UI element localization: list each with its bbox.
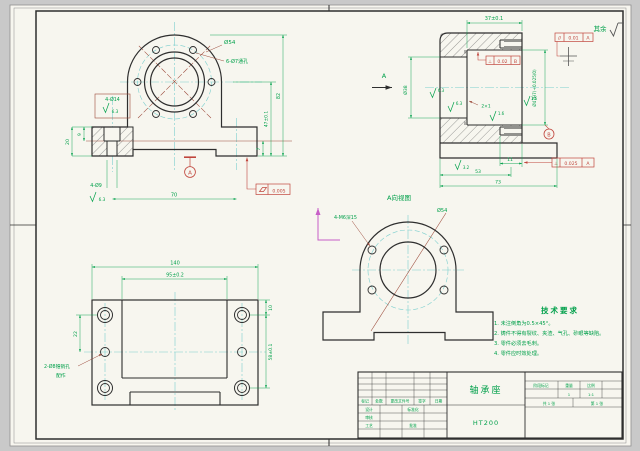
side-ra-bore1: 6.3: [438, 88, 445, 93]
side-view-arrow-label: A: [382, 72, 387, 80]
front-depth20: 20: [65, 139, 71, 145]
parallel-value: 0.01: [568, 36, 578, 42]
drawing-sheet: 其余: [0, 0, 640, 451]
front-bolt-holes-label: 6-Ø7通孔: [226, 58, 248, 65]
perp2-value: 0.025: [564, 161, 577, 167]
side-len11: 11: [507, 157, 513, 163]
tb-row-check: 审核: [365, 415, 373, 420]
bottom-pin-note-2: 配作: [56, 372, 66, 379]
tech-req-title: 技术要求: [541, 305, 579, 315]
tb-stage: 阶段标记: [533, 383, 548, 388]
bottom-pin-note-1: 2-Ø8锥销孔: [44, 363, 70, 370]
tech-req-line: 2. 铸件不得有裂纹、夹渣、气孔、砂眼等缺陷。: [494, 329, 604, 337]
aux-view-label: A向视图: [387, 193, 411, 202]
front-drill-ra: 6.3: [99, 197, 106, 202]
aux-dia54-label: Ø54: [437, 207, 447, 214]
side-datum-b-letter: B: [547, 132, 551, 138]
side-depth37: 37±0.1: [485, 16, 504, 22]
part-name: 轴承座: [469, 384, 502, 396]
side-ra-base: 3.2: [463, 165, 470, 170]
material: HT200: [473, 419, 499, 427]
side-ra-bore2: 6.3: [456, 101, 463, 106]
side-ra-groove: 1.6: [498, 111, 505, 116]
front-height82: 82: [276, 93, 282, 99]
parallel-symbol: //: [558, 36, 562, 42]
tb-row-approve: 批准: [409, 423, 417, 428]
perp2-symbol: ⊥: [554, 161, 558, 167]
tb-sheet-no: 第 1 张: [591, 401, 604, 406]
perp1-datum: B: [514, 59, 517, 65]
front-width70: 70: [171, 193, 177, 199]
tb-scale-val: 1:1: [588, 392, 595, 397]
perp1-symbol: ⊥: [488, 59, 492, 65]
surface-note: 其余: [594, 24, 608, 33]
front-height7: 7: [256, 147, 261, 150]
front-cbore-label: 4-Ø14: [105, 96, 120, 103]
front-datum-letter: A: [188, 170, 192, 176]
side-len53: 53: [475, 169, 481, 175]
tb-weight: 重量: [565, 383, 573, 388]
front-dia54-label: Ø54: [224, 39, 236, 46]
tb-row-standard: 标准化: [407, 407, 419, 412]
tb-col-file: 更改文件号: [391, 399, 410, 404]
front-drill-label: 4-Ø9: [90, 182, 102, 189]
tb-scale: 比例: [587, 383, 595, 388]
bottom-width140: 140: [170, 261, 180, 267]
aux-holes-label: 4-M6深15: [334, 214, 357, 221]
perp1-value: 0.02: [497, 59, 507, 65]
tech-req-line: 3. 零件必须去毛刺。: [494, 339, 542, 347]
cad-drawing-page: 其余: [0, 0, 640, 451]
tb-col-count: 处数: [375, 399, 383, 404]
tb-col-date: 日期: [435, 399, 443, 404]
front-depth9: 9: [77, 133, 82, 136]
side-dia38: Ø38: [402, 85, 409, 95]
front-height47: 47±0.1: [264, 111, 270, 127]
tech-req-line: 1. 未注倒角为0.5×45°。: [494, 319, 554, 327]
tb-sheets-total: 共 1 张: [543, 401, 556, 406]
front-cbore-ra: 6.3: [112, 109, 119, 114]
tb-col-mark: 标记: [361, 399, 369, 404]
tb-row-design: 设计: [365, 407, 373, 412]
bottom-pitch58: 58±0.1: [268, 343, 274, 360]
bottom-edge10: 10: [268, 305, 274, 311]
bottom-pitch22: 22: [73, 331, 79, 337]
side-ra-face: 1.6: [531, 96, 538, 101]
side-len73: 73: [495, 180, 501, 186]
tb-row-process: 工艺: [365, 423, 373, 428]
tb-col-sign: 签字: [418, 399, 426, 404]
side-groove-label: 2×1: [481, 104, 490, 110]
front-flatness-value: 0.005: [272, 188, 285, 194]
tech-req-line: 4. 零件应时效处理。: [494, 349, 542, 357]
bottom-width95: 95±0.2: [166, 273, 184, 279]
